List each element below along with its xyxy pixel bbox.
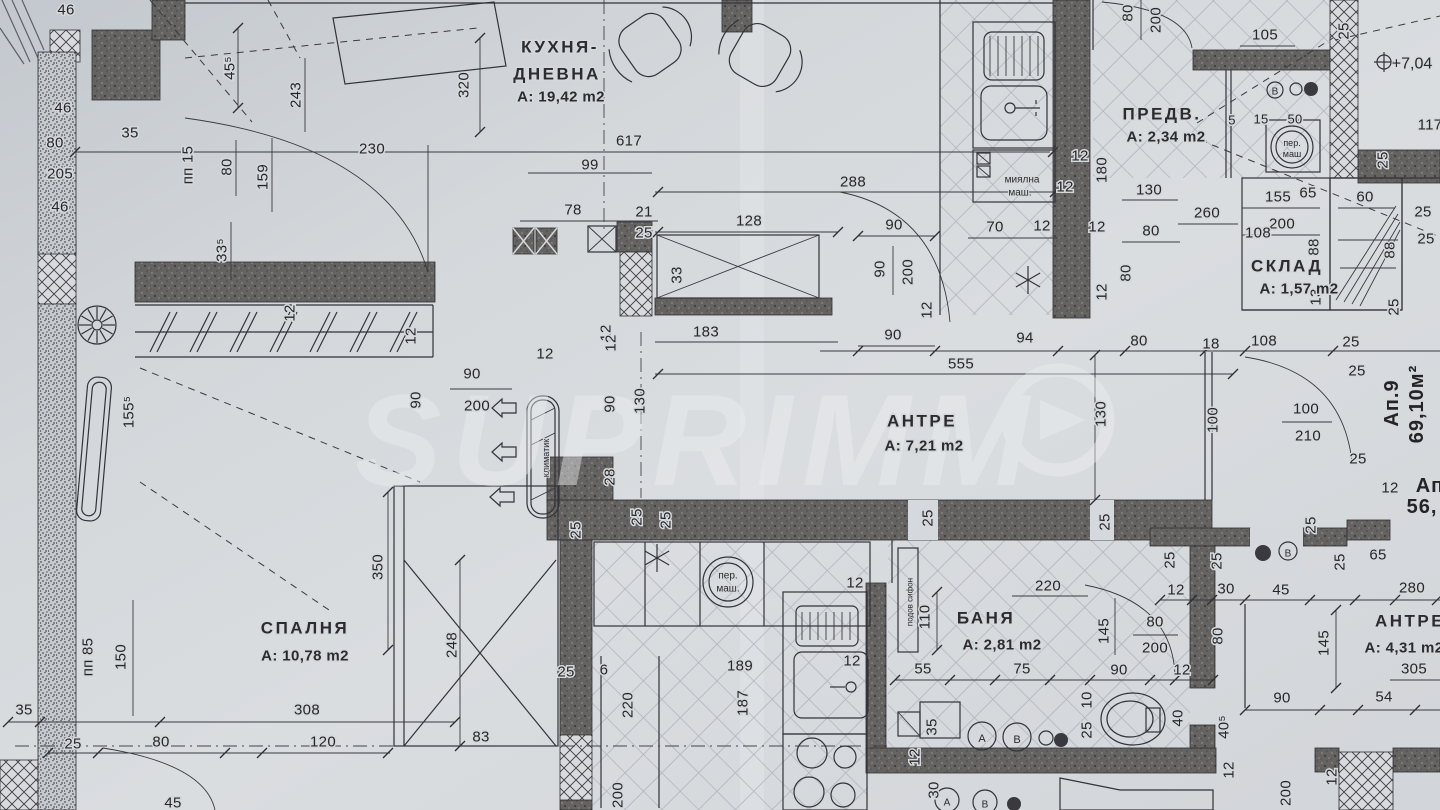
floorplan-svg: SUPRIMM 464635802054645⁵243пп 158015933⁵…	[0, 0, 1440, 810]
dimension-label: 90	[885, 217, 902, 234]
dimension-label: 117	[1418, 117, 1440, 134]
dimension-label: 60	[1356, 189, 1373, 206]
dimension-label: 150	[113, 644, 130, 670]
dimension-label: 205	[47, 166, 73, 183]
dimension-label: 35	[15, 702, 32, 719]
dimension-label: 90	[463, 366, 480, 383]
dimension-label: 25	[1414, 204, 1431, 221]
dimension-label: пп 15	[180, 146, 197, 185]
annotation-label: пер.	[718, 571, 737, 582]
antre-2-label: А: 4,31 m2	[1364, 640, 1440, 657]
dimension-label: 99	[581, 157, 598, 174]
dimension-label: 25	[1303, 516, 1320, 533]
annotation-label: пер.	[1283, 138, 1300, 148]
dimension-label: 12	[1221, 761, 1238, 778]
dimension-label: 308	[294, 702, 320, 719]
antre-main-label: АНТРЕ	[887, 412, 957, 431]
dimension-label: 33	[669, 266, 686, 283]
dimension-label: 200	[1142, 640, 1168, 657]
predverie-label: ПРЕДВ.	[1122, 105, 1201, 124]
dimension-label: 12	[846, 575, 863, 592]
dimension-label: 12	[919, 301, 936, 318]
dimension-label: 78	[564, 202, 581, 219]
dimension-label: пп 85	[80, 638, 97, 677]
apartment-9-label: Ап.9	[1381, 379, 1403, 426]
dimension-label: 243	[288, 82, 305, 108]
dimension-label: 145	[1096, 618, 1113, 644]
watermark: SUPRIMM	[355, 367, 1108, 513]
apartment-next-label: 56,	[1407, 496, 1438, 518]
annotation-label: А	[978, 733, 986, 745]
dimension-label: 55	[914, 661, 931, 678]
dimension-label: 12	[1088, 219, 1105, 236]
annotation-label: +7,04	[1392, 56, 1433, 73]
dimension-label: 80	[46, 135, 63, 152]
dimension-label: 200	[1148, 7, 1165, 33]
dimension-label: 189	[727, 658, 753, 675]
dimension-label: 155⁵	[121, 396, 138, 428]
dimension-label: 305	[1401, 661, 1427, 678]
dimension-label: 320	[456, 72, 473, 98]
dimension-label: 28	[602, 468, 619, 485]
dimension-label: 145	[1316, 630, 1333, 656]
dimension-label: 350	[370, 554, 387, 580]
dimension-label: 90	[408, 391, 425, 408]
dimension-label: 80	[219, 158, 236, 175]
sklad-label: СКЛАД	[1251, 257, 1323, 276]
banya-label: БАНЯ	[957, 609, 1015, 628]
dimension-label: 21	[635, 204, 652, 221]
dimension-label: 230	[359, 141, 385, 158]
dimension-label: 159	[255, 164, 272, 190]
dimension-label: 25	[64, 736, 81, 753]
dimension-label: 183	[693, 324, 719, 341]
dimension-label: 130	[632, 388, 649, 414]
dimension-label: 180	[1094, 157, 1111, 183]
kitchen-living-label: КУХНЯ-	[521, 38, 599, 57]
dimension-label: 80	[1142, 223, 1159, 240]
dimension-label: 288	[840, 174, 866, 191]
annotation-label: В	[1013, 734, 1020, 746]
dimension-label: 25	[1079, 721, 1096, 738]
annotation-label: В	[982, 800, 989, 810]
dimension-label: 90	[872, 260, 889, 277]
dimension-label: 12	[1033, 218, 1050, 235]
dimension-label: 30	[926, 781, 943, 798]
dimension-label: 65	[1369, 547, 1386, 564]
dimension-label: 200	[610, 782, 627, 808]
dimension-label: 70	[986, 219, 1003, 236]
dimension-label: 25	[658, 511, 675, 528]
dimension-label: 12	[282, 304, 299, 321]
dimension-label: 12	[1071, 148, 1088, 165]
dimension-label: 46	[54, 100, 71, 117]
sklad-label: А: 1,57 m2	[1259, 281, 1338, 298]
annotation-label: маш.	[716, 584, 739, 595]
spalnya-label: А: 10,78 m2	[261, 648, 349, 665]
dimension-label: 220	[620, 692, 637, 718]
dimension-label: 35	[121, 125, 138, 142]
dimension-label: 25	[1162, 551, 1179, 568]
dimension-label: 10	[1079, 691, 1096, 708]
annotation-label: подов сифон	[906, 578, 915, 626]
dimension-label: 200	[1269, 216, 1295, 233]
dimension-label: 25	[1386, 298, 1403, 315]
kitchen-living-label: ДНЕВНА	[513, 65, 601, 84]
dimension-label: 25	[1349, 451, 1366, 468]
dimension-label: 260	[1194, 205, 1220, 222]
dimension-label: 80	[1120, 4, 1137, 21]
dimension-label: 25	[920, 509, 937, 526]
dimension-label: 220	[1035, 578, 1061, 595]
dimension-label: 12	[603, 334, 620, 351]
dimension-label: 105	[1252, 27, 1278, 44]
dimension-label: 12	[1167, 582, 1184, 599]
dimension-label: 80	[1210, 627, 1227, 644]
dimension-label: 83	[472, 729, 489, 746]
dimension-label: 45⁵	[222, 56, 239, 80]
dimension-label: 25	[1209, 552, 1226, 569]
dimension-label: 248	[444, 632, 461, 658]
dimension-label: 94	[1016, 330, 1033, 347]
dimension-label: 12	[843, 653, 860, 670]
dimension-label: 75	[1013, 661, 1030, 678]
annotation-label: В	[1272, 87, 1279, 98]
dimension-label: 12	[1381, 480, 1398, 497]
dimension-label: 110	[917, 605, 934, 630]
dimension-label: 80	[1118, 264, 1135, 281]
dimension-label: 128	[736, 213, 762, 230]
antre-main-label: А: 7,21 m2	[884, 438, 963, 455]
dimension-label: 80	[1130, 333, 1147, 350]
dimension-label: 6	[600, 662, 609, 679]
dimension-label: 65	[1299, 185, 1316, 202]
dimension-label: 12	[536, 346, 553, 363]
dimension-label: 40	[1170, 709, 1187, 726]
apartment-next-label: Ап	[1416, 475, 1440, 497]
dimension-label: 25	[1375, 151, 1392, 168]
predverie-label: А: 2,34 m2	[1126, 129, 1205, 146]
dimension-label: 12	[1056, 179, 1073, 196]
dimension-label: 50	[1287, 112, 1302, 127]
annotation-label: маш.	[1008, 188, 1031, 199]
dimension-label: 90	[1110, 662, 1127, 679]
apartment-9-label: 69,10м²	[1406, 365, 1428, 444]
dimension-label: 12	[403, 327, 420, 344]
dimension-label: 15	[1253, 112, 1268, 127]
dimension-label: 25	[635, 225, 652, 242]
dimension-label: 155	[1265, 189, 1291, 206]
annotation-label: маш	[1283, 149, 1301, 159]
dimension-label: 25	[1336, 22, 1353, 39]
dimension-label: 25	[1417, 231, 1434, 248]
dimension-label: 25	[1332, 553, 1349, 570]
dimension-label: 88	[1382, 241, 1399, 258]
dimension-label: 120	[310, 734, 336, 751]
dimension-label: 280	[1399, 580, 1425, 597]
dimension-label: 200	[1278, 780, 1295, 806]
dimension-label: 12	[907, 748, 924, 765]
annotation-label: А	[944, 798, 951, 809]
dimension-label: 88	[1306, 238, 1323, 255]
dimension-label: 90	[602, 395, 619, 412]
dimension-label: 46	[57, 2, 74, 19]
dimension-label: 18	[1202, 336, 1219, 353]
dimension-label: 35	[924, 718, 941, 735]
dimension-label: 45	[1272, 582, 1289, 599]
dimension-label: 25	[1342, 334, 1359, 351]
dimension-label: 80	[1146, 614, 1163, 631]
dimension-label: 187	[735, 690, 752, 716]
dimension-label: 100	[1293, 401, 1319, 418]
dimension-label: 45	[164, 795, 181, 810]
dimension-label: 108	[1251, 333, 1277, 350]
dimension-label: 25	[557, 664, 574, 681]
dimension-label: 130	[1093, 401, 1110, 427]
dimension-label: 100	[1205, 407, 1222, 433]
dimension-label: 200	[464, 398, 490, 415]
dimension-label: 555	[948, 356, 974, 373]
dimension-label: 12	[1173, 662, 1190, 679]
floorplan-scan: SUPRIMM 464635802054645⁵243пп 158015933⁵…	[0, 0, 1440, 810]
dimension-label: 210	[1295, 428, 1321, 445]
dimension-label: 40⁵	[1216, 715, 1233, 739]
dimension-label: 200	[900, 259, 917, 285]
dimension-label: 12	[1094, 283, 1111, 300]
antre-2-label: АНТРЕ	[1375, 612, 1440, 631]
banya-label: А: 2,81 m2	[962, 637, 1041, 654]
dimension-label: 130	[1136, 182, 1162, 199]
dimension-label: 25	[1348, 363, 1365, 380]
annotation-label: миялна	[1005, 175, 1040, 186]
annotation-label: климатик	[541, 439, 551, 477]
dimension-label: 80	[152, 734, 169, 751]
dimension-label: 25	[568, 521, 585, 538]
dimension-label: 12	[1324, 768, 1341, 785]
kitchen-living-label: А: 19,42 m2	[517, 89, 605, 106]
spalnya-label: СПАЛНЯ	[261, 619, 349, 638]
dimension-label: 30	[1217, 581, 1234, 598]
dimension-label: 33⁵	[214, 238, 231, 262]
dimension-label: 108	[1245, 225, 1271, 242]
dimension-label: 5	[1228, 113, 1236, 128]
dimension-label: 617	[616, 133, 642, 150]
dimension-label: 54	[1375, 689, 1392, 706]
dimension-label: 90	[1273, 690, 1290, 707]
annotation-label: В	[1285, 549, 1292, 560]
dimension-label: 25	[1097, 513, 1114, 530]
dimension-label: 25	[629, 508, 646, 525]
dimension-label: 90	[884, 327, 901, 344]
dimension-label: 46	[51, 199, 68, 216]
